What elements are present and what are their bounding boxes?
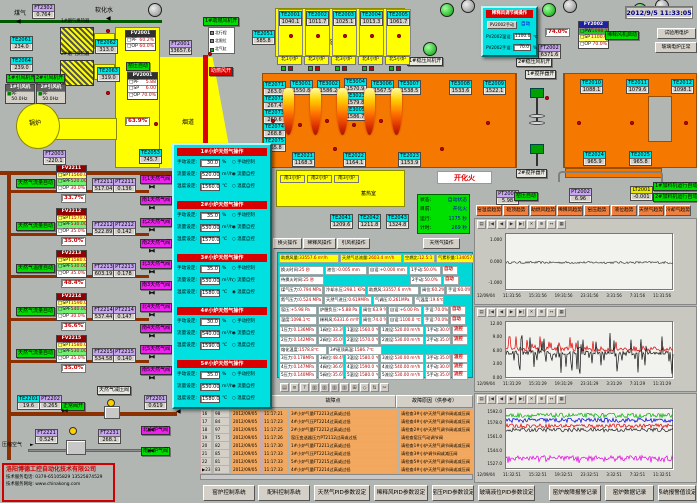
popup-section-title: 4#小炉天然气操作 [177,307,267,315]
faceplate-value: 520.00 [71,179,87,185]
status-label: 天然气减压阀 [97,386,131,395]
span-icon[interactable]: ↔ [547,308,556,317]
instrument-TE2002: TE20021011.7 [306,11,329,26]
chart-x-axis: 12/09/0411:32:5115:32:5119:32:5123:32:51… [477,472,671,477]
faceplate-row: □SPT1570.0 [57,215,86,222]
chart-x-tick: 7:31:29 [630,381,645,386]
button-窑炉控制系统[interactable]: 窑炉控制系统 [203,485,255,501]
chart-plot-area [505,233,673,290]
instrument-value: 33657.6 [170,48,191,54]
cell-key: 熔化温度: [281,347,299,352]
chart-x-tick: 7:32:51 [630,472,645,477]
company-info-box: 洛阳博德工控自动化技术有限公司 技术服务电话: 0379-65105829 13… [2,463,115,502]
print-icon[interactable]: ▤ [280,383,289,392]
chart-x-tick: 23:32:51 [581,472,599,477]
button-窑压PID参数设定[interactable]: 窑压PID参数设定 [432,485,474,501]
prev-icon[interactable]: ◀ [497,220,506,229]
faceplate-row: □SPT1580.0 [57,257,86,264]
zoom-icon[interactable]: ⊕ [537,395,546,404]
zoom-icon[interactable]: ⊕ [537,220,546,229]
button-试验用电炉[interactable]: 试验用电炉 [657,28,696,39]
valve-icon[interactable]: ▶◀ [149,249,153,254]
button-稀释风PID参数设定[interactable]: 稀释风PID参数设定 [374,485,428,501]
chart-x-tick: 12/09/04 [477,293,495,298]
popup-field-input[interactable]: 530.00 [200,277,220,285]
popup-field-unit: ℃ [222,185,227,190]
faceplate-row: □SPF530.00 [57,348,86,355]
instrument-value: 1586.2 [318,88,339,94]
trend-button-助燃风趋势[interactable]: 助燃风趋势 [530,205,556,216]
data-table-cell: 1手动:50.0% [409,266,441,275]
instrument-label: PT2212 [114,222,135,229]
data-table-cell: 2流设:530.00 m³/h [380,336,424,345]
cell-value: +6.00 Pa [400,307,419,312]
popup-radio-手动控制[interactable]: ○ 手动控制 [232,214,255,218]
cell-value: 1590.0 ℃ [359,364,379,369]
instrument-value: 0.136 [114,186,135,192]
status-label: 北小炉气阀 [141,426,170,435]
instrument-TE2009: TE20091522.1 [483,80,506,95]
burner-header: 北2小炉 [304,56,329,65]
legend-label: 北气缸 [215,45,227,53]
instrument-label: FT2215 [93,349,114,356]
next-icon[interactable]: ▶ [507,308,516,317]
chart-y-tick: 1.000 [476,238,502,242]
data-table-spacer [325,276,409,285]
instrument-label: TE3004 [345,79,366,86]
burner-header-south: 南1小炉 [280,175,305,183]
cell-key: 1压力: [281,327,293,332]
faceplate-row: □OP35.0% [57,355,86,362]
alarm-cell: 11:17:33 [262,465,288,474]
cell-value: 50.0% [423,267,436,272]
prev-icon[interactable]: ◀ [497,395,506,404]
instrument-label: TE2072 [264,96,285,103]
calendar-icon[interactable]: ▤ [477,395,486,404]
cell-key: 煤气压力: [281,287,299,292]
button-配料控制系统[interactable]: 配料控制系统 [258,485,310,501]
status-label: 南小炉气阀 [141,447,170,456]
popup-radio-手动控制[interactable]: ○ 手动控制 [232,373,255,377]
instrument-PT2211: PT22110.136 [113,178,136,193]
popup-field-input[interactable]: 35.0 [200,212,220,220]
valve-icon[interactable]: ▶◀ [149,334,153,339]
valve-icon[interactable]: ▶◀ [62,409,66,414]
data-table-cell: 空燃比:12.5:1 [403,254,435,263]
chart-series-svg [506,409,674,470]
instrument-value: 965.8 [630,159,651,165]
cell-key: 稀释风: [320,317,334,322]
popup-section-title: 5#小炉天然气操作 [177,360,267,368]
trend-button-碹顶趋势[interactable]: 碹顶趋势 [503,205,529,216]
static-label: ► [30,443,34,448]
sensor-point-icon [106,29,110,33]
popup-field-label: 手动设定: [177,373,197,378]
popup-field-input[interactable]: 1570.0 [200,236,220,244]
cell-key: 3温设: [347,355,359,360]
data-table-row: 待换火时间:25 秒2手动:50.0%自动 [279,276,459,285]
fan-icon [461,0,475,13]
cell-value: 63.9 % [373,307,387,312]
chart-y-tick: 1561.0 [476,435,502,439]
burner-header: 北1小炉 [277,56,302,65]
valve-icon[interactable]: ▶◀ [148,428,152,433]
stop-icon[interactable]: ✕ [527,308,536,317]
instrument-FT2221: FT22210.524 [35,429,58,444]
instrument-value: 0.147 [114,314,135,320]
instrument-label: TE2025 [630,152,651,159]
chart-x-tick: 12/09/04 [477,381,495,386]
data-table-cell: 天然气总流量:2603.4 m³/h [340,254,402,263]
prev-icon[interactable]: ◀ [497,308,506,317]
flowmeter-body [104,406,120,419]
fan-drive-value: PF 50.0Hz [11,92,33,103]
first-icon[interactable]: |◀ [487,395,496,404]
instrument-PT2213: PT22130.178 [113,263,136,278]
valve-icon[interactable]: ▶◀ [149,291,153,296]
instrument-value: 537.44 [93,314,114,320]
instrument-TE2074: TE2074268.8 [263,123,286,138]
instrument-TE2025: TE2025965.8 [629,151,652,166]
instrument-value: 1538.5 [399,88,420,94]
company-website[interactable]: 技术服务网站: www.chinakong.com [6,481,111,488]
data-table-cell: 自设:+0.000 mm [368,266,408,275]
popup-field-label: 温度设定: [177,291,197,296]
popup-field-label: 温度设定: [177,238,197,243]
faceplate-row: □SPF530.00 [57,263,86,270]
alarm-scrollbar[interactable] [200,474,473,480]
popup-section-title: 1#小炉天然气操作 [177,148,267,156]
last-icon[interactable]: ▶| [517,395,526,404]
stop-icon[interactable]: ✕ [527,395,536,404]
grid-icon[interactable]: ⊞ [350,383,359,392]
last-icon[interactable]: ▶| [517,220,526,229]
instrument-value: 239.0 [11,65,32,71]
valve-icon[interactable]: ▶◀ [149,270,153,275]
popup-field-input[interactable]: 35.0 [200,265,220,273]
popup-radio-流量自控[interactable]: ○ 流量自控 [232,279,255,283]
valve-icon[interactable]: ▶◀ [149,313,153,318]
cell-value: 50.0% [424,277,437,282]
faceplate-value: 1560.0 [71,173,87,179]
cell-key: 温度: [281,317,291,322]
cell-key: 5手动: [427,372,439,377]
trend-button-液位趋势[interactable]: 液位趋势 [611,205,637,216]
instrument-label: TE2063 [98,68,119,75]
chart-y-tick: 12.00 [476,322,502,326]
faceplate-value: 1580.0 [71,343,87,349]
popup-field-input[interactable]: 530.00 [200,224,220,232]
faceplate-FV2211[interactable]: FV2211□SPT1560.0□SPF520.00□OP30.0% [56,165,87,193]
popup-field-unit: ℃ [222,397,227,402]
cell-value: 30.0% [439,364,451,369]
cell-value: 0.142MPa [293,337,314,342]
span-icon[interactable]: ↔ [547,220,556,229]
instrument-label: PT2215 [114,349,135,356]
popup-radio-流量自控[interactable]: ◉ 流量自控 [232,226,255,230]
status-label: 窑压自动 [126,62,150,71]
popup-radio-温度自控[interactable]: ○ 温度自控 [232,397,255,401]
burner-indicators [335,66,352,71]
list-icon[interactable]: ≡ [290,383,299,392]
instrument-TE2011: TE20111079.6 [626,79,649,94]
button-系统报警值设定[interactable]: 系统报警值设定 [658,485,696,501]
datetime-display: 2012/9/5 11:33:05 [625,6,693,19]
help-icon[interactable]: ? [300,383,309,392]
instrument-label: FT2302 [33,5,54,12]
instrument-label: TE2053 [140,150,161,157]
legend-label: 北限位 [215,37,227,45]
cell-value: 298.1 KPa [344,287,365,292]
faceplate-key: □OP [129,93,140,99]
cell-key: 自设: [390,307,400,312]
air-compressor-body [66,440,86,455]
popup-field-input[interactable]: 1560.0 [200,183,220,191]
popup-field-unit: % [222,214,226,219]
popup-field-input[interactable]: 30.0 [200,318,220,326]
instrument-value: 534.58 [93,356,114,362]
popup-field-input[interactable]: 1580.0 [200,395,220,403]
instrument-value: 1209.6 [331,222,352,228]
sensor-point-icon [440,147,444,151]
span-icon[interactable]: ↔ [547,395,556,404]
instrument-value: 1040.1 [280,19,301,25]
instrument-TE2042: TE20421211.8 [358,214,381,229]
burner-indicators [308,66,325,71]
chart-y-tick: 0.000 [476,260,502,264]
popup-radio-温度自控[interactable]: ○ 温度自控 [232,185,255,189]
first-icon[interactable]: |◀ [487,308,496,317]
button-窑炉故障报警记录[interactable]: 窑炉故障报警记录 [549,485,601,501]
faceplate-FV2215[interactable]: FV2215□SPT1580.0□SPF530.00□OP35.0% [56,335,87,363]
cell-key: 助燃风: [369,287,383,292]
trend-button-窑压趋势[interactable]: 窑压趋势 [584,205,610,216]
instrument-value: 0.140 [114,356,135,362]
status-row: 目前:开化火 [420,205,467,214]
faceplate-key: □OP [58,186,69,192]
cell-key: 待换火时间: [281,277,303,282]
popup-field-input[interactable]: 1590.0 [200,342,220,350]
cell-value: 1586.7℃ [354,347,373,352]
status-label: 天然气流量自动 [16,307,55,316]
data-table-cell: 1流设:520.00 m³/h [380,326,424,335]
faceplate-PV2001[interactable]: PV2001□PF5.88□SP6.00□OP70.0% [127,72,158,100]
stop-indicator-icon [342,66,347,71]
fan-drive-row: ■PF 50.0Hz [37,91,65,103]
button-窑炉数据记录[interactable]: 窑炉数据记录 [605,485,654,501]
status-label: 北2天然气阀 [140,218,172,227]
cell-key: 手设: [448,287,458,292]
instrument-label: TE2064 [11,58,32,65]
instrument-label: TE2043 [387,215,408,222]
popup-radio-手动控制[interactable]: ○ 手动控制 [232,267,255,271]
popup-radio-温度自控[interactable]: ◉ 温度自控 [232,291,255,295]
button-玻璃电炉正常[interactable]: 玻璃电炉正常 [655,42,697,53]
clear-icon[interactable]: ✂ [380,383,389,392]
cell-key: 5阀位: [320,372,332,377]
trend-button-冷却气趋势[interactable]: 冷却气趋势 [665,205,691,216]
faceplate-key: □PF [127,38,137,44]
popup-radio-手动控制[interactable]: ○ 手动控制 [232,320,255,324]
cell-key: 1阀位: [320,327,332,332]
instrument-label: TE2012 [672,80,693,87]
cell-key: 4温设: [347,364,359,369]
valve-icon[interactable]: ▶◀ [149,206,153,211]
valve-icon[interactable]: ▶◀ [148,449,152,454]
stirrer-motor-2 [530,144,544,154]
cell-key: 4阀位: [320,364,332,369]
button-引风机操作[interactable]: 引风机操作 [337,238,370,249]
cell-value: 60.2% [432,287,445,292]
sensor-point-icon [343,34,347,38]
faceplate-row: □SP6.00 [128,85,157,92]
faceplate-value: 30.0% [70,314,85,320]
data-table-cell: 3温设:1580.0 ℃ [345,354,379,363]
faceplate-key: □OP [58,229,69,235]
log-icon[interactable]: ▦ [557,220,566,229]
fan-drive-value: PF 50.0Hz [42,92,64,103]
chart-x-axis: 12/09/0411:31:2915:31:2919:31:2923:31:29… [477,381,671,386]
cell-key: 炉膛负压: [320,307,338,312]
faceplate-FV2212[interactable]: FV2212□SPT1570.0□SPF530.00□OP35.0% [56,208,87,236]
stirrer-blade-1 [529,114,545,118]
first-icon[interactable]: |◀ [487,220,496,229]
popup-radio-流量自控[interactable]: ◉ 流量自控 [232,332,255,336]
popup-field-unit: % [222,320,226,325]
cell-value: 520.00 m³/h [394,327,420,332]
data-table-tag: 自动 [442,266,458,275]
calendar-icon[interactable]: ▤ [477,308,486,317]
popup-field-input[interactable]: 1580.0 [200,289,220,297]
instrument-value: -220.1 [44,158,65,164]
button-PV2002手动[interactable]: PV2002手动 [487,21,517,29]
chart-x-tick: 11:32:51 [503,472,521,477]
valve-icon[interactable]: ▶◀ [149,185,153,190]
button-玻璃液位PID参数设定[interactable]: 玻璃液位PID参数设定 [478,485,535,501]
popup-field-input[interactable]: 30.0 [200,159,220,167]
chart-x-tick: 3:31:56 [606,293,621,298]
chart-y-tick: 0.00 [476,376,502,380]
trend-button-天然气趋势[interactable]: 天然气趋势 [638,205,664,216]
sort-icon[interactable]: ⇅ [370,383,379,392]
instrument-label: FT2231 [99,430,120,437]
popup-radio-温度自控[interactable]: ○ 温度自控 [232,344,255,348]
cell-value: 12.5:1 [419,255,432,260]
faceplate-FV2214[interactable]: FV2214□SPT1590.0□SPF540.00□OP30.0% [56,293,87,321]
cell-key: 5压力: [281,372,293,377]
data-table-cell: 气累积量:134057.7m³ [436,254,474,263]
popup-radio-温度自控[interactable]: ○ 温度自控 [232,238,255,242]
button-天然气操作[interactable]: 天然气操作 [423,238,460,249]
cell-value: 30.0% [439,327,451,332]
faceplate-row: □SPT1590.0 [57,300,86,307]
next-icon[interactable]: ▶ [507,220,516,229]
faceplate-key: □SP [129,86,139,92]
faceplate-FV2213[interactable]: FV2213□SPT1580.0□SPF530.00□OP35.0% [56,250,87,278]
auto-mode-label: 自动 [521,23,530,28]
log-icon[interactable]: ▦ [557,395,566,404]
next-icon[interactable]: ▶ [507,395,516,404]
popup-radio-流量自控[interactable]: ◉ 流量自控 [232,173,255,177]
fan-drive-title: 1#引风机 [6,85,34,91]
calendar-icon[interactable]: ▤ [477,220,486,229]
instrument-label: TE3023 [345,93,366,100]
instrument-value: 319.0 [98,75,119,81]
instrument-FT2215: FT2215534.58 [92,348,115,363]
data-table-cell: 液位:-0.005 mm [325,266,367,275]
status-label: 1#引风机开 [6,74,37,83]
popup-field-label: 手动设定: [177,161,197,166]
ack-icon[interactable]: ◇ [360,383,369,392]
alarm-cell: 请检查4#小炉天然气调节阀或减压阀 [399,465,475,474]
status-label: 1#搅拌器开 [525,70,556,79]
filter-1-icon[interactable]: ▥ [310,383,319,392]
faceplate-value: 1590.0 [71,301,87,307]
trend-button-稀释风趋势[interactable]: 稀释风趋势 [557,205,583,216]
button-天然气PID参数设定[interactable]: 天然气PID参数设定 [314,485,370,501]
filter-3-icon[interactable]: ▥ [330,383,339,392]
burner-header-south: 南3小炉 [334,175,359,183]
last-icon[interactable]: ▶| [517,308,526,317]
trend-button-窑温度趋势[interactable]: 窑温度趋势 [476,205,502,216]
valve-position-value: 74.0% [545,28,570,37]
cell-value: 33.3% [332,327,344,332]
chart-y-tick: -1.000 [476,281,502,285]
faceplate-FV2001[interactable]: FV2001□PF60.2%□OP60.0% [125,30,156,51]
alarm-cell: 4#小炉气量FT2214过高或过低 [289,465,398,474]
filter-2-icon[interactable]: ▥ [320,383,329,392]
cell-key: 1流设: [382,327,394,332]
popup-field-input[interactable]: 1100.0 [513,33,531,40]
instrument-TE2043: TE20431324.8 [386,214,409,229]
instrument-label: TE3005 [345,107,366,114]
cell-key: 自设: [370,267,380,272]
filter-4-icon[interactable]: ▥ [340,383,349,392]
data-table-cell: 3压力:0.178MPa [279,354,317,363]
popup-field-input[interactable]: 540.00 [200,330,220,338]
chart-x-tick: 7:31:56 [630,293,645,298]
data-table-cell: 煤气压力:0.794 MPa [279,286,323,295]
popup-field-input[interactable]: 520.00 [200,171,220,179]
stop-icon[interactable]: ✕ [527,220,536,229]
stirrer-shaft-1 [536,98,538,122]
chart-x-tick: 11:31:56 [653,293,671,298]
valve-icon[interactable]: ▶◀ [149,376,153,381]
valve-icon[interactable]: ▶◀ [149,355,153,360]
cell-key: 2温设: [347,337,359,342]
popup-field-input[interactable]: 35.0 [200,371,220,379]
popup-field-input[interactable]: 70.0 [513,44,531,51]
faceplate-value: 35.0% [70,229,85,235]
instrument-value: 1061.7 [388,19,409,25]
instrument-value: 1011.7 [307,19,328,25]
button-换火操作[interactable]: 换火操作 [273,238,302,249]
faceplate-row: □SPT1580.0 [57,342,86,349]
data-table-cell: 待换火时间:25 秒 [279,276,324,285]
log-icon[interactable]: ▦ [557,308,566,317]
valve-icon[interactable]: ▶◀ [149,228,153,233]
popup-radio-流量自控[interactable]: ◉ 流量自控 [232,385,255,389]
zoom-icon[interactable]: ⊕ [537,308,546,317]
button-稀释风操作[interactable]: 稀释风操作 [303,238,336,249]
popup-field-input[interactable]: 530.00 [200,383,220,391]
cell-key: 阀位: [422,287,432,292]
main-gas-pipe [11,412,177,416]
popup-radio-手动控制[interactable]: ○ 手动控制 [232,161,255,165]
chart-x-tick: 15:31:56 [529,293,547,298]
instrument-label: FT2001 [170,41,191,48]
alarm-header-reason: 故障原因（供参考） [396,395,473,408]
